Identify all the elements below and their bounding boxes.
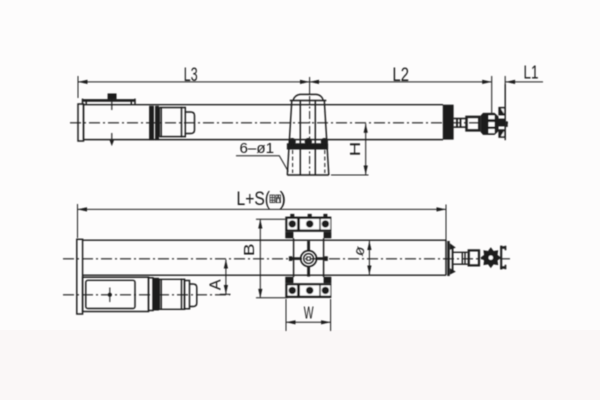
svg-text:B: B (242, 243, 258, 256)
svg-text:): ) (280, 189, 286, 210)
svg-text:A: A (208, 279, 225, 290)
svg-text:L3: L3 (184, 65, 198, 86)
svg-text:L1: L1 (524, 63, 539, 83)
svg-text:L+S(: L+S( (237, 189, 271, 210)
svg-text:L2: L2 (393, 65, 410, 86)
svg-text:6–ø1: 6–ø1 (240, 141, 275, 157)
svg-text:H: H (348, 142, 364, 157)
svg-text:W: W (304, 302, 314, 322)
